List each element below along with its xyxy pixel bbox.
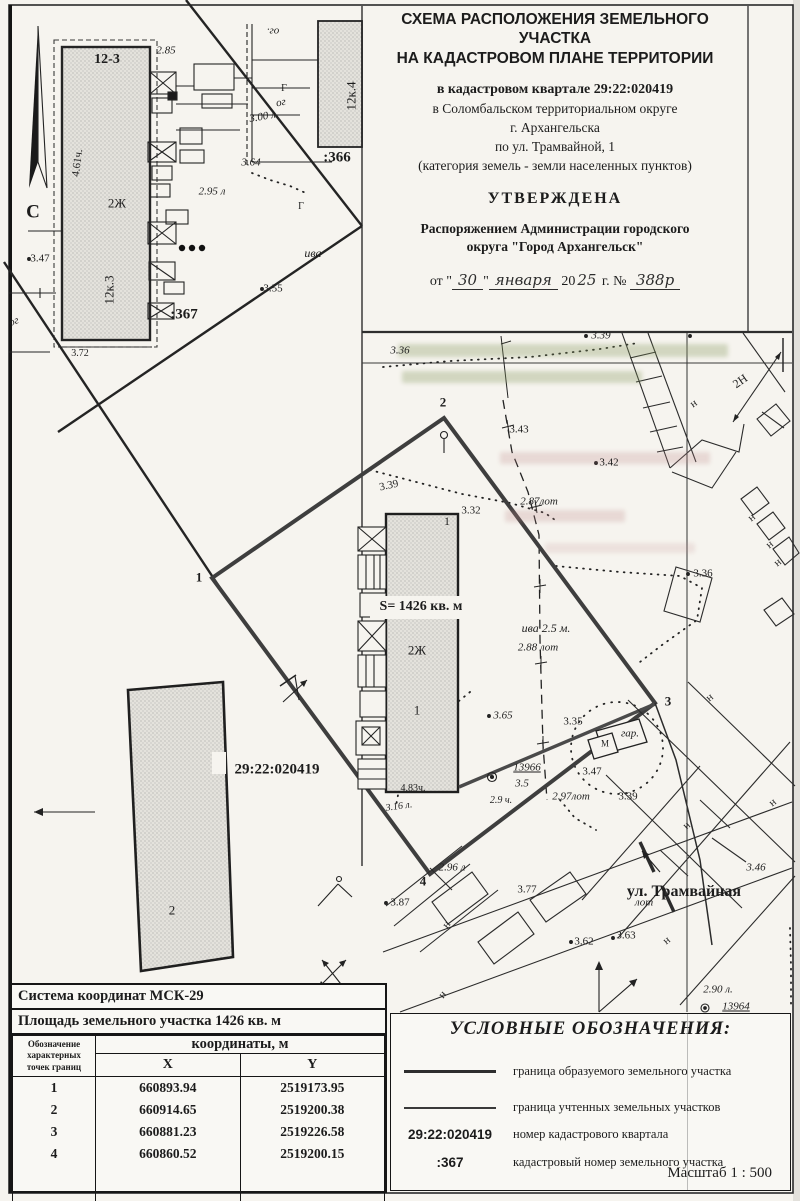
handwritten-year: 25 (575, 271, 598, 289)
scale-label: Масштаб 1 : 500 (667, 1165, 772, 1182)
handwritten-order-number: 388р (630, 271, 680, 290)
map-label: 3.47 (582, 767, 601, 778)
map-label: 3.5 (515, 779, 529, 790)
map-label: 3.43 (509, 425, 528, 436)
map-label: ива 2.5 м. (522, 622, 571, 634)
map-label: ива (304, 247, 321, 259)
map-label: 3.36 (390, 346, 409, 357)
x-value: 660893.94 (96, 1077, 241, 1100)
point-number: 1 (13, 1077, 96, 1100)
map-label: 12к.4 (345, 81, 358, 110)
date-suffix: г. № (602, 274, 627, 289)
map-label: 2 (440, 396, 447, 409)
map-label: 3.64 (241, 158, 260, 169)
map-label: 2 (169, 904, 176, 917)
map-label: :367 (170, 308, 198, 323)
date-quote: " (483, 274, 489, 289)
approval-date-line: от "30"января 2025 г. № 388р (366, 271, 744, 290)
new-boundary-line-sample (404, 1070, 496, 1073)
parcel-area-label: S= 1426 кв. м (380, 600, 463, 614)
map-label: 3.42 (599, 458, 618, 469)
order-line2: округа "Город Архангельск" (366, 238, 744, 256)
scheme-title-line2: НА КАДАСТРОВОМ ПЛАНЕ ТЕРРИТОРИИ (366, 49, 744, 68)
map-label: Г (298, 202, 304, 212)
map-label: 3.77 (517, 885, 536, 896)
map-label: 3.55 (263, 284, 282, 295)
recorded-boundary-line-sample (404, 1107, 496, 1109)
y-value: 2519226.58 (240, 1121, 385, 1143)
legend-item: граница учтенных земельных участков (401, 1100, 720, 1115)
coordinates-table: Система координат МСК-29 Площадь земельн… (10, 983, 387, 1193)
map-label: С (26, 203, 40, 222)
x-value: 660914.65 (96, 1099, 241, 1121)
cadastral-quarter-line: в кадастровом квартале 29:22:020419 (366, 82, 744, 98)
y-value: 2519200.15 (240, 1143, 385, 1165)
map-label: 3.35 (563, 717, 582, 728)
map-label: :366 (323, 151, 351, 166)
map-label: лот (635, 898, 653, 909)
map-label: 2.90 л. (703, 985, 733, 996)
map-label: 2Ж (408, 644, 426, 657)
legend-item: 29:22:020419 номер кадастрового квартала (401, 1127, 668, 1142)
city-line: г. Архангельска (366, 120, 744, 136)
approved-heading: УТВЕРЖДЕНА (366, 190, 744, 208)
map-label: 13964 (722, 1002, 750, 1013)
land-category-line: (категория земель - земли населенных пун… (366, 158, 744, 174)
map-label: 3.46 (746, 863, 765, 874)
table-filler-row (13, 1165, 385, 1201)
map-label: 2.87лот (520, 497, 558, 508)
handwritten-month: января (489, 271, 558, 290)
map-label: 29:22:020419 (235, 763, 320, 778)
points-header-cell: Обозначение характерных точек границ (13, 1036, 96, 1077)
map-label: 3.63 (616, 931, 635, 942)
map-label: 2.96 л (439, 863, 466, 874)
y-column-header: Y (240, 1054, 385, 1077)
table-row: 2 660914.65 2519200.38 (13, 1099, 385, 1121)
map-label: 3.72 (71, 349, 89, 359)
map-label: гар. (621, 729, 639, 740)
legend-item-label: номер кадастрового квартала (513, 1127, 668, 1142)
map-label: 13966 (513, 763, 541, 774)
x-value: 660860.52 (96, 1143, 241, 1165)
map-label: Г (281, 84, 287, 94)
table-row: 1 660893.94 2519173.95 (13, 1077, 385, 1100)
map-label: 2.95 л (199, 187, 226, 198)
coords-header-cell: координаты, м (96, 1036, 385, 1054)
x-column-header: X (96, 1054, 241, 1077)
map-label: 3 (665, 695, 672, 708)
coordinate-system-row: Система координат МСК-29 (12, 985, 385, 1010)
map-label: 2.88 лот (518, 643, 558, 654)
map-label: 1 (414, 704, 421, 717)
y-value: 2519173.95 (240, 1077, 385, 1100)
map-label: ог. (267, 26, 279, 37)
handwritten-day: 30 (452, 271, 483, 290)
quarter-number-sample: 29:22:020419 (401, 1127, 499, 1142)
map-label: 2.97лот (552, 792, 590, 803)
parcel-number-sample: :367 (401, 1155, 499, 1170)
map-label: 2.9 ч. (490, 796, 512, 806)
parcel-area-row: Площадь земельного участка 1426 кв. м (12, 1010, 385, 1035)
cadastral-scheme-page: 12-32.852.95 л4.61ч.2Ж12к.33.47:3673.72о… (0, 0, 800, 1201)
legend-item-label: граница учтенных земельных участков (513, 1100, 720, 1115)
legend-item: граница образуемого земельного участка (401, 1064, 731, 1079)
map-label: 3.32 (461, 506, 480, 517)
point-number: 2 (13, 1099, 96, 1121)
scheme-title-line1: СХЕМА РАСПОЛОЖЕНИЯ ЗЕМЕЛЬНОГО УЧАСТКА (366, 10, 744, 49)
map-label: 1 (196, 571, 203, 584)
point-number: 4 (13, 1143, 96, 1165)
district-line: в Соломбальском территориальном округе (366, 101, 744, 117)
map-label: 2Ж (108, 197, 126, 210)
x-value: 660881.23 (96, 1121, 241, 1143)
map-label: 12к.3 (103, 275, 116, 304)
map-label: М (601, 740, 609, 749)
table-row: 4 660860.52 2519200.15 (13, 1143, 385, 1165)
legend: УСЛОВНЫЕ ОБОЗНАЧЕНИЯ: граница образуемог… (390, 1013, 791, 1191)
map-label: 4.83ч. (400, 784, 425, 794)
map-label: 3.36 (693, 569, 712, 580)
map-label: 3.65 (493, 711, 512, 722)
map-label: 3.47 (30, 254, 49, 265)
map-label: 12-3 (94, 53, 120, 67)
date-prefix: от " (430, 274, 452, 289)
order-line1: Распоряжением Администрации городского (366, 220, 744, 238)
legend-item-label: граница образуемого земельного участка (513, 1064, 731, 1079)
map-label: 2.85 (156, 46, 175, 57)
point-number: 3 (13, 1121, 96, 1143)
y-value: 2519200.38 (240, 1099, 385, 1121)
map-label: 3.87 (390, 898, 409, 909)
map-label: 3.62 (574, 937, 593, 948)
map-label: 3.39 (591, 331, 610, 342)
title-block: СХЕМА РАСПОЛОЖЕНИЯ ЗЕМЕЛЬНОГО УЧАСТКА НА… (366, 10, 744, 328)
map-label: 4 (420, 875, 427, 888)
table-row: 3 660881.23 2519226.58 (13, 1121, 385, 1143)
map-label: 1 (444, 515, 450, 527)
map-label: 3.39 (618, 792, 637, 803)
year-printed: 20 (561, 274, 575, 289)
legend-title: УСЛОВНЫЕ ОБОЗНАЧЕНИЯ: (391, 1019, 790, 1040)
street-line: по ул. Трамвайной, 1 (366, 139, 744, 155)
